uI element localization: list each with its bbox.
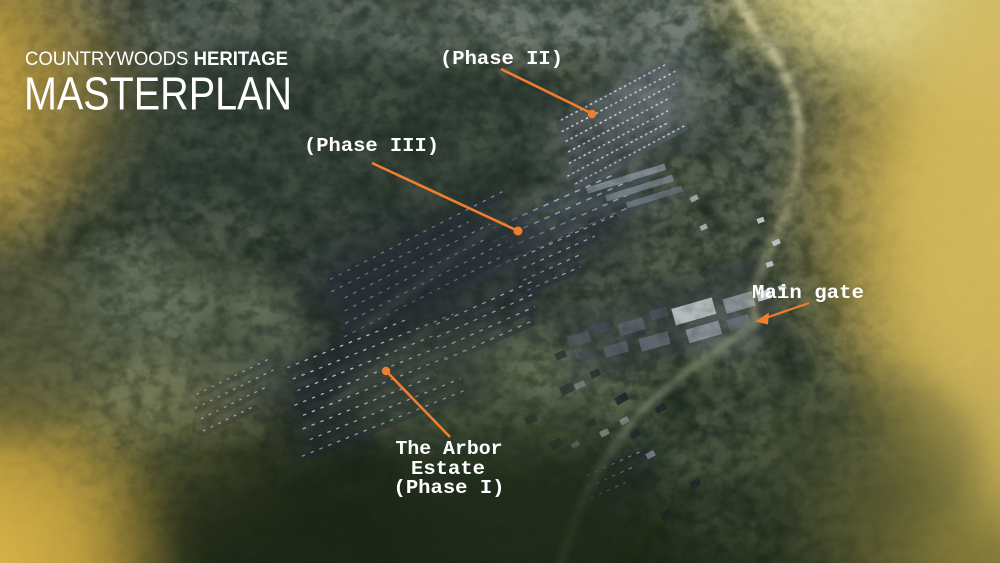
svg-text:(Phase III): (Phase III) [304, 135, 439, 157]
svg-text:(Phase I): (Phase I) [394, 477, 505, 499]
svg-text:Main gate: Main gate [752, 282, 864, 304]
svg-text:The Arbor: The Arbor [396, 438, 503, 460]
svg-text:(Phase II): (Phase II) [440, 48, 563, 70]
svg-text:MASTERPLAN: MASTERPLAN [24, 68, 292, 120]
